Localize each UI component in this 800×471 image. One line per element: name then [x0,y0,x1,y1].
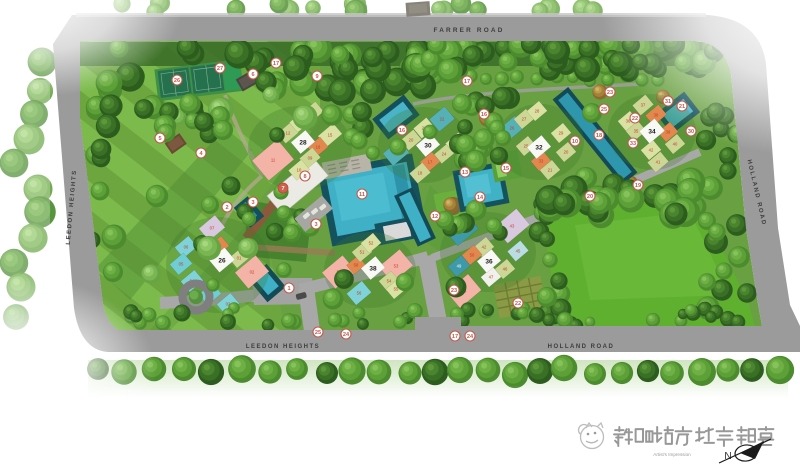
svg-text:06: 06 [184,245,189,250]
svg-text:1: 1 [287,286,290,292]
svg-text:17: 17 [273,61,279,67]
svg-text:50: 50 [470,253,475,258]
svg-text:39: 39 [666,130,671,135]
svg-text:16: 16 [316,145,321,150]
svg-text:26: 26 [174,78,180,84]
svg-text:LEEDON HEIGHTS: LEEDON HEIGHTS [246,344,320,350]
svg-text:49: 49 [457,264,462,269]
svg-text:30: 30 [688,129,694,135]
svg-text:10: 10 [297,168,302,173]
svg-text:23: 23 [607,90,613,96]
svg-text:2: 2 [225,205,228,211]
svg-text:20: 20 [409,138,414,143]
svg-text:58: 58 [354,263,359,268]
svg-text:22: 22 [515,301,521,307]
svg-text:17: 17 [428,160,433,165]
svg-text:3: 3 [314,222,317,228]
svg-text:27: 27 [217,66,223,72]
svg-text:53: 53 [394,264,399,269]
svg-text:7: 7 [281,186,284,192]
svg-text:FARRER ROAD: FARRER ROAD [433,27,504,34]
svg-text:8: 8 [303,174,306,180]
svg-text:28: 28 [535,109,540,114]
svg-text:23: 23 [451,288,457,294]
svg-text:25: 25 [601,107,607,113]
svg-text:17: 17 [464,79,470,85]
svg-text:14: 14 [477,195,484,201]
svg-text:25: 25 [315,330,321,336]
svg-text:Artist's Impression: Artist's Impression [653,452,691,457]
svg-text:33: 33 [630,141,636,147]
svg-text:6: 6 [251,72,254,78]
svg-text:28: 28 [299,139,307,146]
svg-text:35: 35 [634,129,639,134]
svg-text:24: 24 [442,152,447,157]
svg-text:34: 34 [648,128,656,135]
svg-text:51: 51 [360,250,365,255]
svg-text:01: 01 [237,256,242,261]
svg-text:17: 17 [452,334,458,340]
svg-text:42: 42 [649,148,654,153]
svg-text:02: 02 [250,270,255,275]
svg-text:18: 18 [418,171,423,176]
svg-text:46: 46 [503,267,508,272]
svg-text:12: 12 [432,214,438,220]
svg-text:37: 37 [641,103,646,108]
svg-text:21: 21 [548,168,553,173]
svg-text:10: 10 [572,139,578,145]
svg-text:30: 30 [424,142,432,149]
svg-text:41: 41 [656,160,661,165]
svg-text:18: 18 [596,133,602,139]
svg-text:5: 5 [158,136,161,142]
svg-text:22: 22 [632,116,638,122]
svg-text:19: 19 [635,183,641,189]
svg-text:11: 11 [271,158,276,163]
svg-text:16: 16 [399,128,405,134]
svg-text:24: 24 [467,334,474,340]
svg-text:05: 05 [179,262,184,267]
svg-text:12: 12 [286,131,291,136]
svg-text:22: 22 [440,117,445,122]
svg-text:36: 36 [485,258,493,265]
svg-text:16: 16 [481,112,487,118]
svg-text:45: 45 [516,249,521,254]
svg-text:52: 52 [369,241,374,246]
svg-text:26: 26 [510,126,515,131]
svg-text:38: 38 [654,113,659,118]
svg-text:43: 43 [510,224,515,229]
svg-text:31: 31 [665,99,671,105]
svg-text:33: 33 [539,159,544,164]
svg-text:47: 47 [489,275,494,280]
svg-text:27: 27 [522,117,527,122]
svg-text:HOLLAND ROAD: HOLLAND ROAD [548,344,615,350]
svg-text:13: 13 [462,170,468,176]
svg-text:07: 07 [210,226,215,231]
svg-text:20: 20 [587,194,593,200]
svg-text:56: 56 [357,291,362,296]
svg-text:40: 40 [673,142,678,147]
svg-text:29: 29 [559,131,564,136]
svg-text:38: 38 [369,265,377,272]
svg-text:26: 26 [218,257,226,264]
svg-text:9: 9 [315,74,318,80]
svg-text:11: 11 [359,192,365,198]
svg-text:15: 15 [328,133,333,138]
svg-text:15: 15 [503,166,509,172]
svg-text:54: 54 [387,279,392,284]
svg-text:3: 3 [251,200,254,206]
svg-text:42: 42 [482,245,487,250]
svg-text:09: 09 [308,156,313,161]
svg-text:20: 20 [564,150,569,155]
svg-text:21: 21 [679,104,685,110]
svg-text:32: 32 [535,144,543,151]
svg-text:24: 24 [343,332,350,338]
